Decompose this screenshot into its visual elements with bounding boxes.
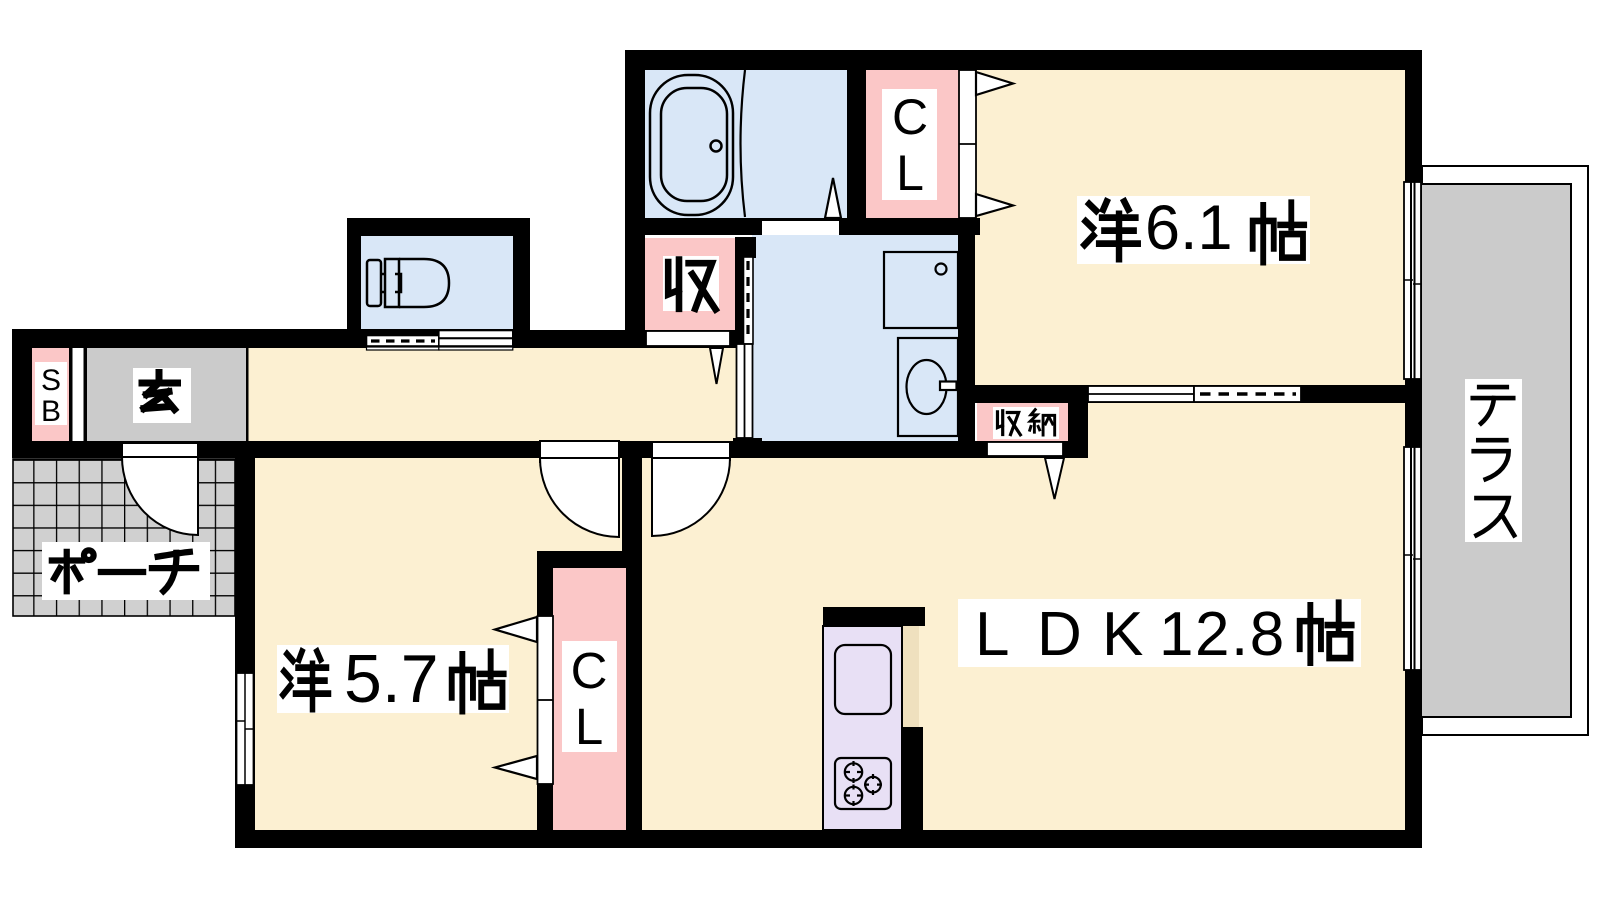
svg-text:L: L: [896, 145, 924, 201]
svg-text:D: D: [1037, 600, 1082, 669]
svg-text:B: B: [41, 395, 61, 428]
svg-text:L: L: [975, 600, 1009, 669]
svg-text:6.1: 6.1: [1145, 193, 1233, 263]
svg-text:5.7: 5.7: [344, 641, 439, 717]
svg-text:C: C: [892, 89, 928, 145]
svg-text:L: L: [575, 698, 603, 755]
svg-text:C: C: [571, 642, 608, 699]
svg-text:12.8: 12.8: [1159, 600, 1286, 669]
svg-text:S: S: [41, 364, 61, 397]
svg-text:K: K: [1102, 600, 1143, 669]
